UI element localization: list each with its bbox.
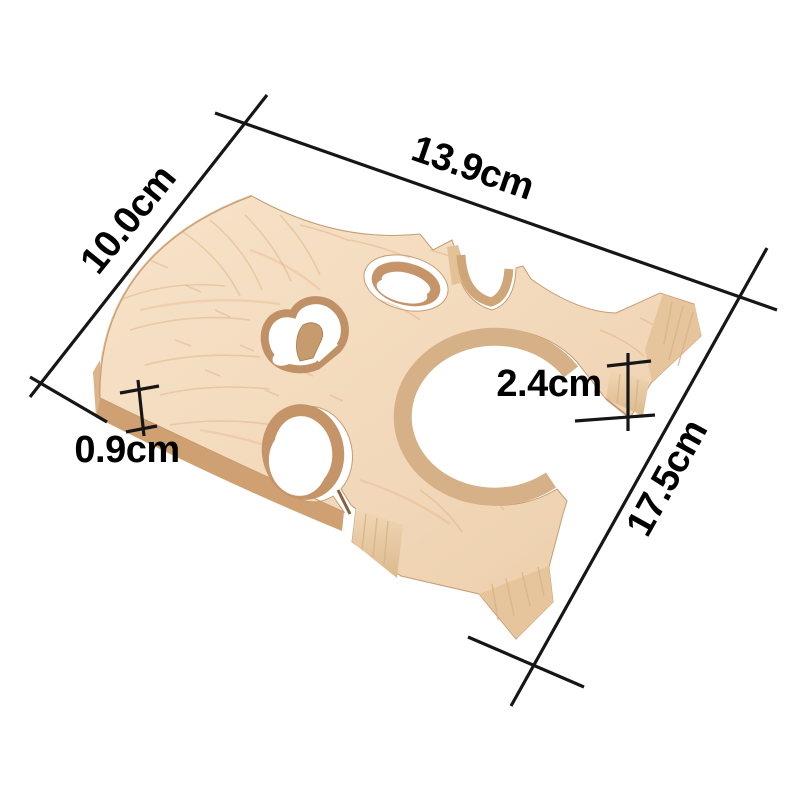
dim-top-width-label: 13.9cm [406,128,539,209]
arch-inner-wall [403,337,571,497]
dim-plate-thickness-label: 0.9cm [74,429,179,471]
dim-foot-height-label: 2.4cm [496,363,601,405]
dim-length-label: 17.5cm [618,413,716,543]
bridge-diagram-canvas: 13.9cm 10.0cm 17.5cm 2.4cm 0.9cm [0,0,800,800]
product-dimension-diagram: 13.9cm 10.0cm 17.5cm 2.4cm 0.9cm [0,0,800,800]
dim-foot-height-tick-bottom [575,415,655,421]
